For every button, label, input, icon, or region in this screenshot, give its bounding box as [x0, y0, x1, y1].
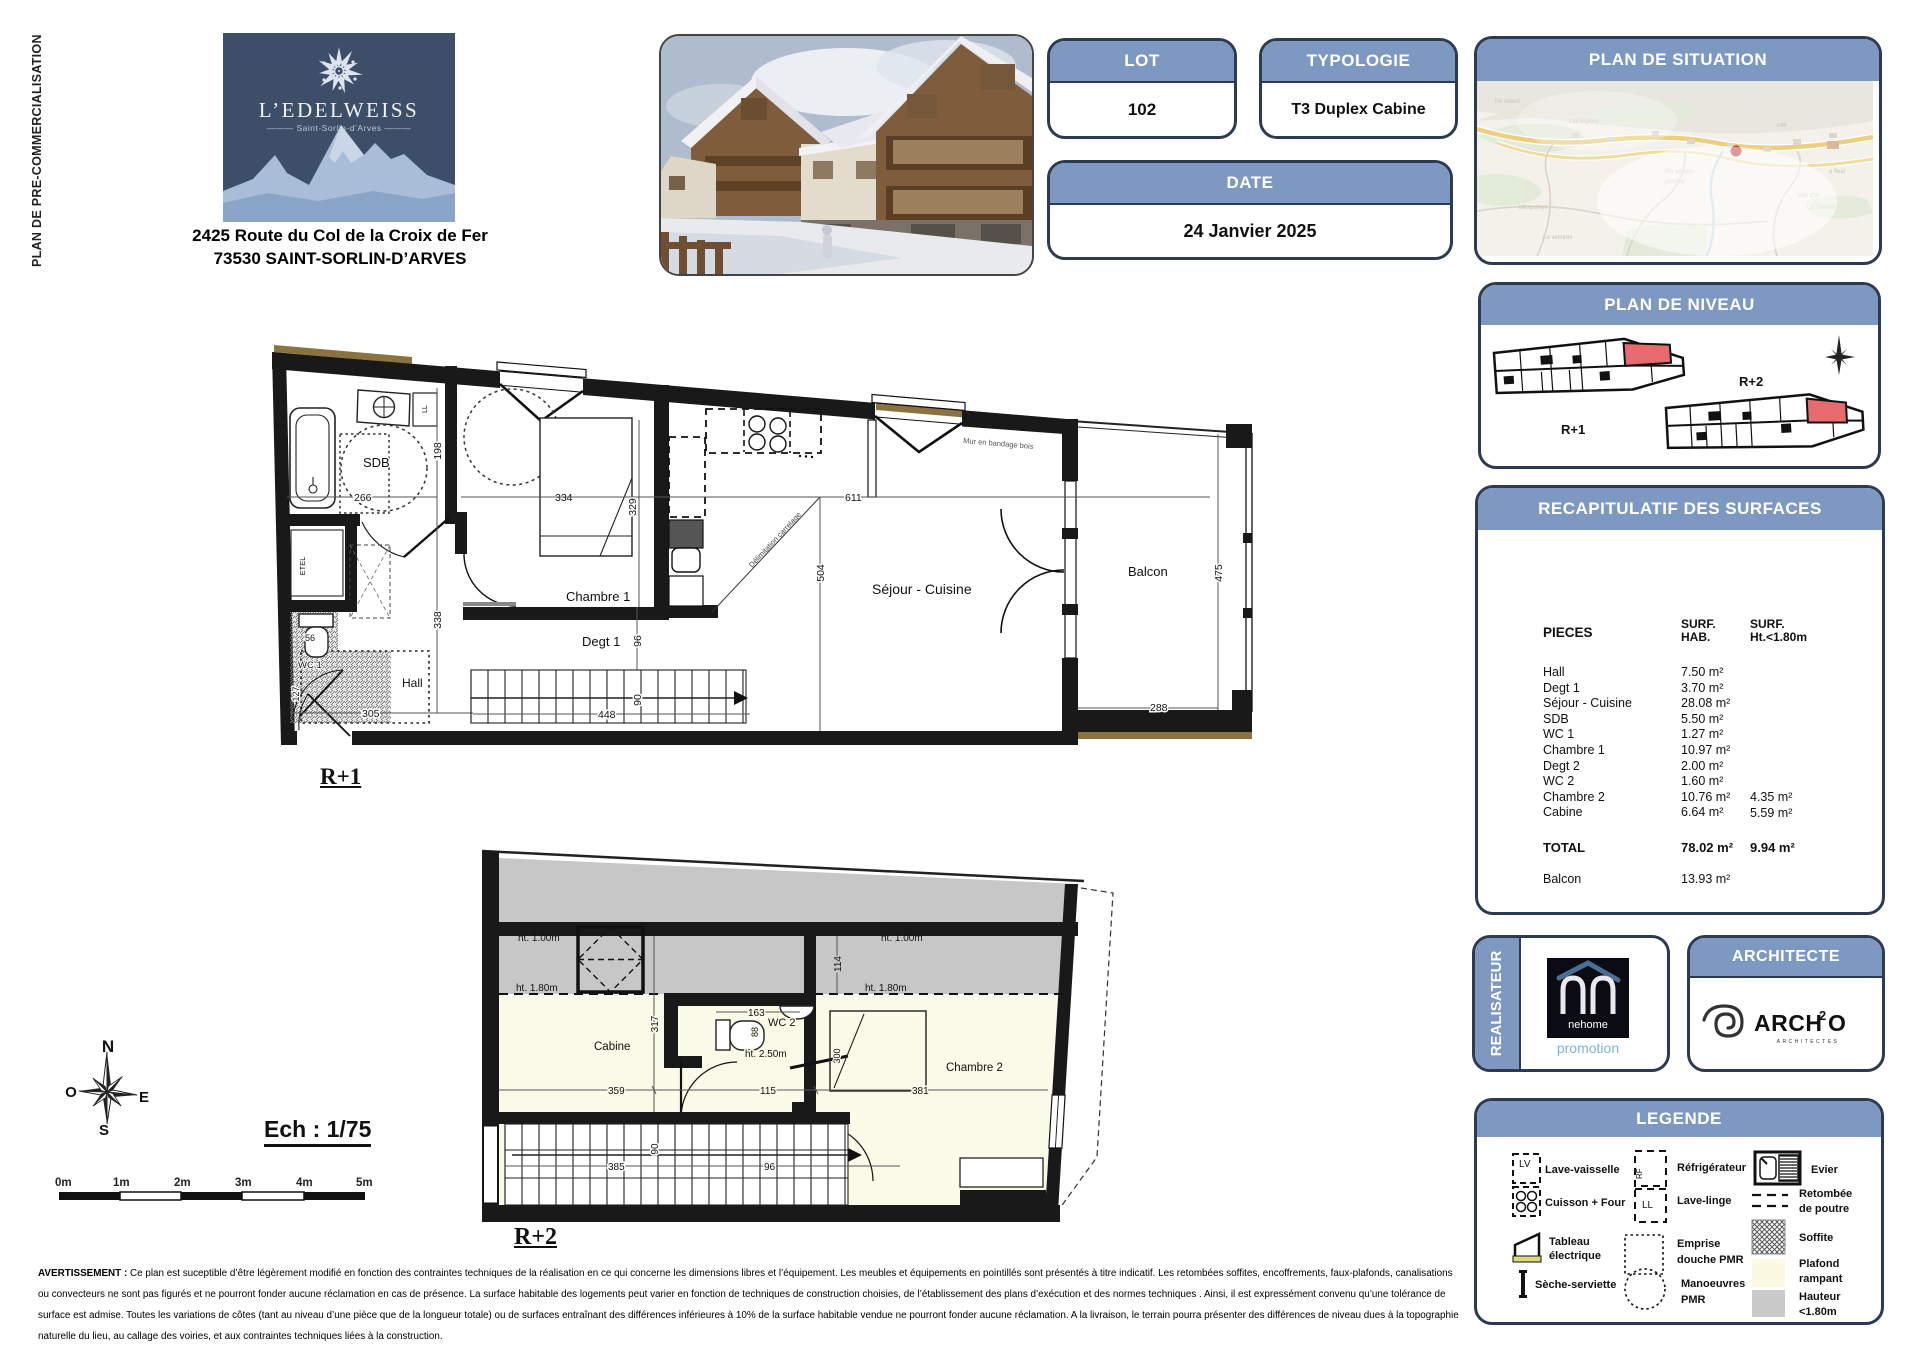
svg-text:114: 114 [833, 956, 844, 972]
svg-text:381: 381 [912, 1086, 929, 1097]
svg-text:5m: 5m [356, 1177, 373, 1189]
svg-text:R+1: R+1 [1561, 422, 1585, 437]
svg-text:nehome: nehome [1568, 1019, 1608, 1031]
svg-text:S: S [99, 1122, 109, 1139]
svg-text:3m: 3m [235, 1177, 252, 1189]
svg-text:338: 338 [432, 611, 444, 629]
svg-text:ETEL: ETEL [298, 557, 307, 576]
svg-text:La vemjres: La vemjres [1543, 235, 1572, 241]
svg-text:317: 317 [650, 1015, 661, 1032]
svg-text:O: O [65, 1084, 77, 1101]
svg-text:Sèche-serviette: Sèche-serviette [1535, 1279, 1616, 1291]
svg-text:Cabine: Cabine [594, 1041, 630, 1053]
svg-text:Chambre 2: Chambre 2 [946, 1062, 1003, 1074]
svg-text:Mur en bandage bois: Mur en bandage bois [963, 436, 1034, 451]
svg-text:Pe villard: Pe villard [1495, 99, 1520, 105]
svg-text:ht. 1.00m: ht. 1.00m [518, 933, 560, 944]
svg-text:Emprise: Emprise [1677, 1238, 1720, 1250]
svg-text:504: 504 [815, 564, 827, 582]
svg-text:115: 115 [760, 1086, 776, 1097]
svg-text:e fleal: e fleal [1829, 169, 1845, 175]
svg-text:127: 127 [291, 686, 301, 701]
svg-text:90: 90 [650, 1143, 661, 1155]
svg-text:ARCH: ARCH [1754, 1010, 1822, 1036]
svg-text:Chambre 1: Chambre 1 [566, 589, 630, 604]
svg-text:2: 2 [1819, 1008, 1826, 1023]
svg-text:L’EDELWEISS: L’EDELWEISS [259, 98, 419, 122]
svg-text:611: 611 [845, 492, 862, 504]
svg-text:LL: LL [1642, 1200, 1654, 1211]
svg-text:Balcon: Balcon [1128, 564, 1168, 579]
svg-text:N: N [102, 1037, 114, 1056]
svg-text:Soffite: Soffite [1799, 1232, 1833, 1244]
svg-text:ARCHITECTES: ARCHITECTES [1777, 1039, 1840, 1045]
svg-text:douche PMR: douche PMR [1677, 1254, 1744, 1266]
svg-text:2m: 2m [174, 1177, 191, 1189]
svg-text:88: 88 [750, 1027, 760, 1037]
svg-text:mlb: mlb [1777, 123, 1787, 129]
svg-text:385: 385 [608, 1162, 625, 1173]
svg-text:Lave-vaisselle: Lave-vaisselle [1545, 1164, 1620, 1176]
svg-text:Délimitation carrelage: Délimitation carrelage [747, 510, 803, 569]
svg-text:Mhspeleys: Mhspeleys [1519, 205, 1548, 211]
svg-text:Lave-linge: Lave-linge [1677, 1195, 1731, 1207]
svg-text:WC 2: WC 2 [768, 1017, 796, 1029]
svg-text:Tableau: Tableau [1549, 1236, 1590, 1248]
svg-text:1m: 1m [113, 1177, 130, 1189]
svg-text:56: 56 [305, 633, 315, 643]
svg-text:198: 198 [432, 442, 444, 460]
svg-text:96: 96 [632, 635, 644, 647]
svg-text:359: 359 [608, 1086, 625, 1097]
svg-text:SDB: SDB [363, 455, 390, 470]
svg-text:475: 475 [1213, 564, 1225, 582]
svg-text:PMR: PMR [1681, 1294, 1706, 1306]
svg-text:Plafond: Plafond [1799, 1258, 1839, 1270]
svg-text:WC 1: WC 1 [298, 660, 322, 671]
svg-text:O: O [1828, 1010, 1846, 1036]
svg-text:ht. 2.50m: ht. 2.50m [745, 1049, 787, 1060]
svg-text:Hall: Hall [402, 676, 423, 690]
svg-text:266: 266 [354, 492, 372, 504]
svg-text:Degt 1: Degt 1 [582, 634, 620, 649]
svg-text:4m: 4m [296, 1177, 313, 1189]
svg-text:334: 334 [555, 492, 573, 504]
svg-text:électrique: électrique [1549, 1250, 1601, 1262]
svg-text:LV: LV [1519, 1159, 1531, 1170]
svg-text:448: 448 [598, 709, 616, 721]
svg-text:305: 305 [362, 708, 380, 720]
svg-text:90: 90 [632, 694, 644, 706]
svg-text:Réfrigérateur: Réfrigérateur [1677, 1162, 1747, 1174]
svg-text:163: 163 [748, 1008, 765, 1019]
svg-text:300: 300 [832, 1048, 842, 1063]
svg-text:<1.80m: <1.80m [1799, 1306, 1837, 1317]
svg-text:de poutre: de poutre [1799, 1203, 1849, 1215]
svg-text:rampant: rampant [1799, 1273, 1843, 1285]
svg-text:E: E [139, 1089, 149, 1106]
svg-text:ht. 1.80m: ht. 1.80m [516, 983, 558, 994]
svg-text:LL: LL [422, 405, 429, 413]
svg-text:Cuisson + Four: Cuisson + Four [1545, 1197, 1626, 1209]
svg-text:RF: RF [1635, 1168, 1644, 1179]
svg-text:ht. 1.80m: ht. 1.80m [865, 983, 907, 994]
svg-text:329: 329 [627, 498, 639, 516]
svg-text:288: 288 [1150, 702, 1168, 714]
svg-text:R+2: R+2 [1739, 374, 1763, 389]
svg-text:Manoeuvres: Manoeuvres [1681, 1278, 1745, 1290]
svg-text:96: 96 [764, 1162, 776, 1173]
svg-text:Evier: Evier [1811, 1164, 1839, 1176]
svg-text:Séjour - Cuisine: Séjour - Cuisine [872, 581, 972, 597]
svg-text:0m: 0m [55, 1177, 72, 1189]
svg-text:ht. 1.00m: ht. 1.00m [881, 933, 923, 944]
svg-text:Hauteur: Hauteur [1799, 1291, 1841, 1303]
svg-text:Retombée: Retombée [1799, 1188, 1852, 1200]
svg-text:promotion: promotion [1557, 1040, 1619, 1056]
